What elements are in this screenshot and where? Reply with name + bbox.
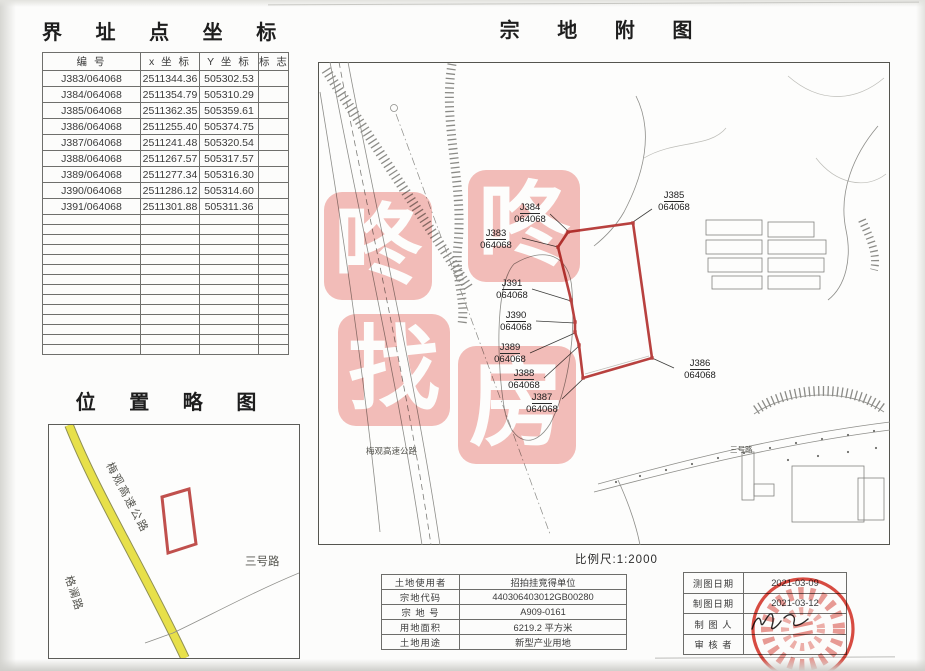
watermark-char: 咚 [468,170,580,282]
empty-table-row [43,265,289,275]
empty-table-row [43,275,289,285]
empty-table-row [43,295,289,305]
table-row: J386/0640682511255.40505374.75 [43,119,289,135]
watermark-char: 找 [338,314,450,426]
plat-map: 梅观高速公路 三号路 咚 咚 找 房 J383 064068 J384 0640… [318,62,890,545]
empty-table-row [43,225,289,235]
boundary-point-label: J386 064068 [674,358,726,382]
empty-table-row [43,245,289,255]
coords-title: 界 址 点 坐 标 [42,16,288,45]
expressway-label: 梅观高速公路 [103,460,152,535]
plat-title: 宗 地 附 图 [318,14,890,43]
scanned-cadastral-document: 界 址 点 坐 标 编 号 x 坐 标 Y 坐 标 标 志 J383/06406… [0,0,925,671]
table-row: J389/0640682511277.34505316.30 [43,167,289,183]
empty-table-row [43,335,289,345]
table-row: J383/0640682511344.36505302.53 [43,71,289,87]
table-row: J384/0640682511354.79505310.29 [43,87,289,103]
table-row: 土地用途 新型产业用地 [382,635,627,650]
building-footprints [706,220,884,522]
coords-header-row: 编 号 x 坐 标 Y 坐 标 标 志 [43,53,289,71]
col-header-mark: 标 志 [259,53,289,71]
boundary-point-label: J388 064068 [498,368,550,392]
table-row: 宗 地 号 A909-0161 [382,605,627,620]
expressway-edge [330,62,422,545]
location-title: 位 置 略 图 [48,386,298,415]
boundary-point-label: J383 064068 [470,228,522,252]
red-seal-stamp [741,573,865,671]
table-row: J387/0640682511241.48505320.54 [43,135,289,151]
location-sketch-map: 梅观高速公路 格澜路 三号路 [48,424,300,659]
parcel-outline-sketch [162,489,196,553]
coords-table-body: J383/0640682511344.36505302.53J384/06406… [43,71,289,215]
table-row: J390/0640682511286.12505314.60 [43,183,289,199]
table-row: J391/0640682511301.88505311.36 [43,199,289,215]
boundary-point-label: J384 064068 [504,202,556,226]
empty-table-row [43,345,289,355]
expressway-edge [348,62,440,545]
side-road-label: 格澜路 [62,574,86,613]
road3-label: 三号路 [245,554,280,568]
land-info-table: 土地使用者 招拍挂竞得单位 宗地代码 440306403012GB00280 宗… [381,574,627,650]
table-row: 土地使用者 招拍挂竞得单位 [382,575,627,590]
empty-table-row [43,305,289,315]
empty-table-row [43,315,289,325]
coords-table: 编 号 x 坐 标 Y 坐 标 标 志 J383/0640682511344.3… [42,52,289,355]
hill-hatch [756,391,882,410]
table-row: 宗地代码 440306403012GB00280 [382,590,627,605]
col-header-x: x 坐 标 [141,53,200,71]
boundary-point-label: J387 064068 [516,392,568,416]
coords-empty-rows [43,215,289,355]
map-border [319,63,890,545]
plat-map-svg: 梅观高速公路 三号路 [318,62,890,545]
map-expressway-label: 梅观高速公路 [366,446,418,456]
empty-table-row [43,325,289,335]
slope-hatch [449,64,462,324]
map-road3-label: 三号路 [730,444,753,454]
boundary-point-label: J385 064068 [648,190,700,214]
empty-table-row [43,285,289,295]
scale-label: 比例尺:1:2000 [575,551,658,567]
empty-table-row [43,235,289,245]
location-sketch-svg: 梅观高速公路 格澜路 三号路 [49,425,299,658]
boundary-point-label: J389 064068 [484,342,536,366]
col-header-y: Y 坐 标 [200,53,259,71]
scan-edge-line [268,2,919,6]
table-row: 用地面积 6219.2 平方米 [382,620,627,635]
scan-edge [0,0,16,671]
col-header-id: 编 号 [43,53,141,71]
scan-edge [916,0,925,671]
table-row: J388/0640682511267.57505317.57 [43,151,289,167]
survey-point-symbol [391,105,398,112]
boundary-point-label: J391 064068 [486,278,538,302]
empty-table-row [43,215,289,225]
slope-hatch [862,220,875,270]
boundary-point-label: J390 064068 [490,310,542,334]
table-row: J385/0640682511362.35505359.61 [43,103,289,119]
empty-table-row [43,255,289,265]
watermark-char: 咚 [324,192,432,300]
